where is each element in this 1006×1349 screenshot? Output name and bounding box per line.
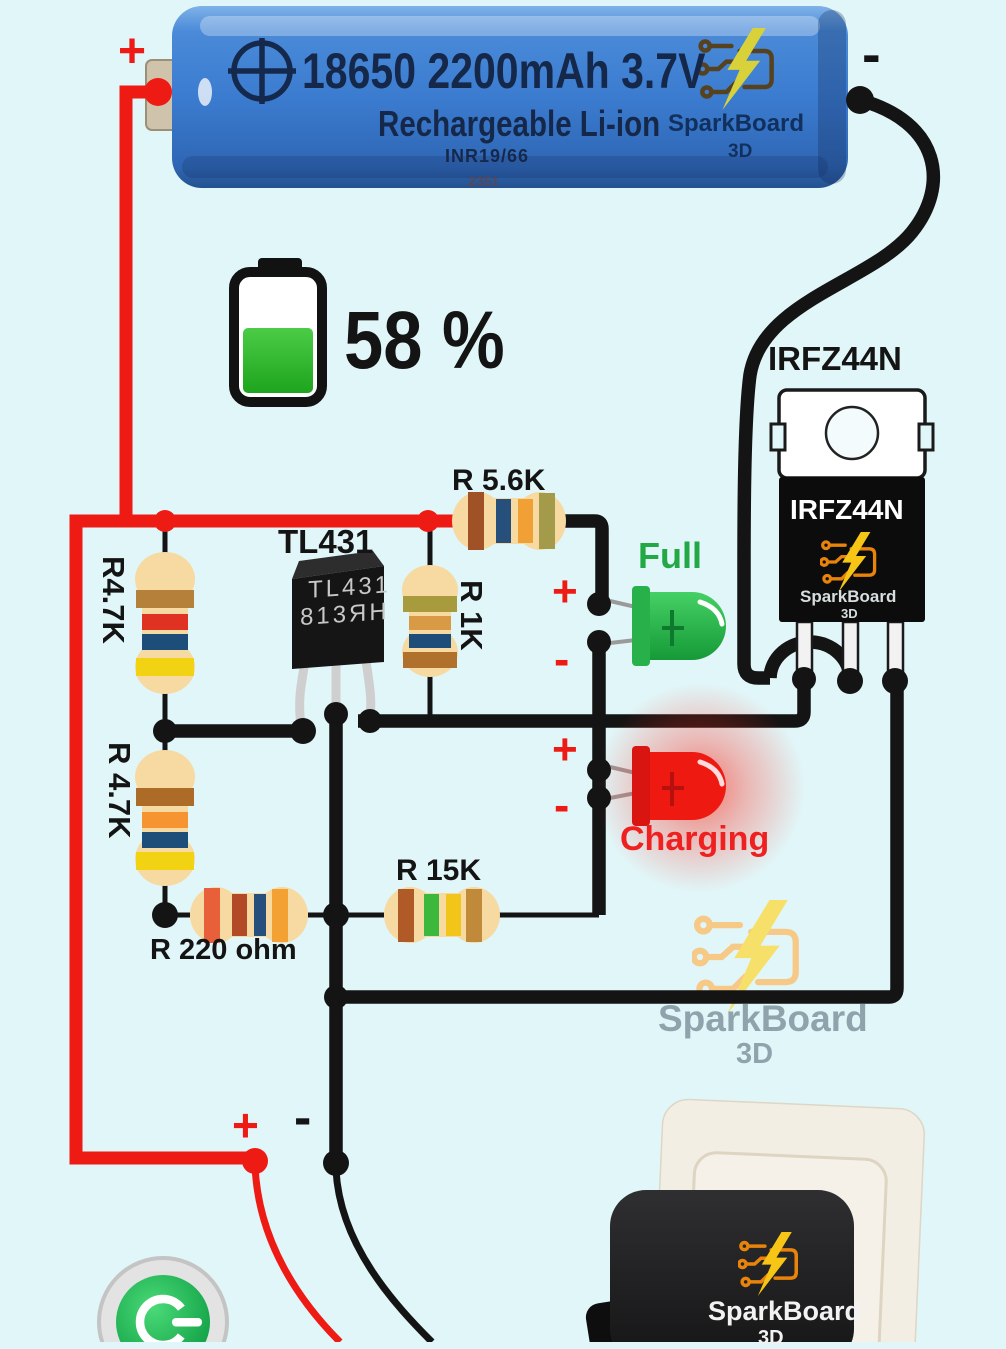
resistor-label-r47k-2: R 4.7K xyxy=(104,742,135,838)
full-led-label: Full xyxy=(638,538,702,574)
charging-led-minus: - xyxy=(554,782,569,828)
full-led xyxy=(632,586,726,666)
output-minus-label: - xyxy=(294,1092,311,1144)
mosfet-mount-hole xyxy=(826,407,878,459)
charger-brand: SparkBoard xyxy=(708,1298,861,1325)
resistor-r1k xyxy=(402,565,458,677)
circuit-diagram: + - 18650 2200mAh 3.7V Rechargeable Li-i… xyxy=(0,0,1006,1342)
resistor-label-r56k: R 5.6K xyxy=(452,466,545,496)
resistor-label-r1k: R 1K xyxy=(456,580,487,651)
battery-level-icon xyxy=(234,258,322,402)
resistor-r47k-2 xyxy=(135,750,195,886)
battery-line1: 18650 2200mAh 3.7V xyxy=(302,46,705,96)
output-plus-label: + xyxy=(232,1102,259,1148)
tl431-title: TL431 xyxy=(278,525,373,558)
wire-output-minus-lead xyxy=(336,1170,432,1342)
battery-brand-sub: 3D xyxy=(728,142,752,161)
resistor-label-r15k: R 15K xyxy=(396,856,481,886)
full-led-minus: - xyxy=(554,636,569,682)
battery-minus-label: - xyxy=(862,26,881,82)
resistor-r15k xyxy=(384,887,500,943)
wire-battery-plus-down xyxy=(126,92,158,521)
wire-positive-rail xyxy=(76,521,458,1158)
battery-level-fill xyxy=(243,328,313,393)
watermark-brand: SparkBoard xyxy=(658,1000,868,1037)
diagram-graphics xyxy=(0,0,1006,1342)
mosfet-irfz44n-package xyxy=(771,390,933,680)
charger-brand-sub: 3D xyxy=(758,1328,784,1348)
resistor-r56k xyxy=(452,492,566,550)
battery-line2: Rechargeable Li-ion xyxy=(378,106,660,142)
full-led-plus: + xyxy=(552,570,578,614)
watermark-sub: 3D xyxy=(736,1040,773,1069)
power-button-icon xyxy=(99,1258,227,1342)
battery-line3: INR19/66 xyxy=(445,147,529,165)
mosfet-brand: SparkBoard xyxy=(800,588,896,605)
battery-percent-label: 58 % xyxy=(344,300,505,382)
negative-junctions xyxy=(152,592,908,1176)
mosfet-brand-sub: 3D xyxy=(841,607,858,620)
battery-line4: 2351 xyxy=(468,174,499,188)
resistor-r47k-1 xyxy=(135,552,195,694)
charging-led-label: Charging xyxy=(620,822,769,856)
battery-brand: SparkBoard xyxy=(668,112,804,136)
resistor-label-r47k-1: R4.7K xyxy=(98,556,129,644)
battery-plus-label: + xyxy=(118,28,146,76)
mosfet-marking: IRFZ44N xyxy=(790,496,904,524)
wire-output-plus-lead xyxy=(255,1165,340,1342)
mosfet-title: IRFZ44N xyxy=(768,342,902,375)
tl431-marking-line2: 813ЯН xyxy=(300,600,390,630)
resistor-label-r220: R 220 ohm xyxy=(150,936,297,965)
charging-led-plus: + xyxy=(552,728,578,772)
